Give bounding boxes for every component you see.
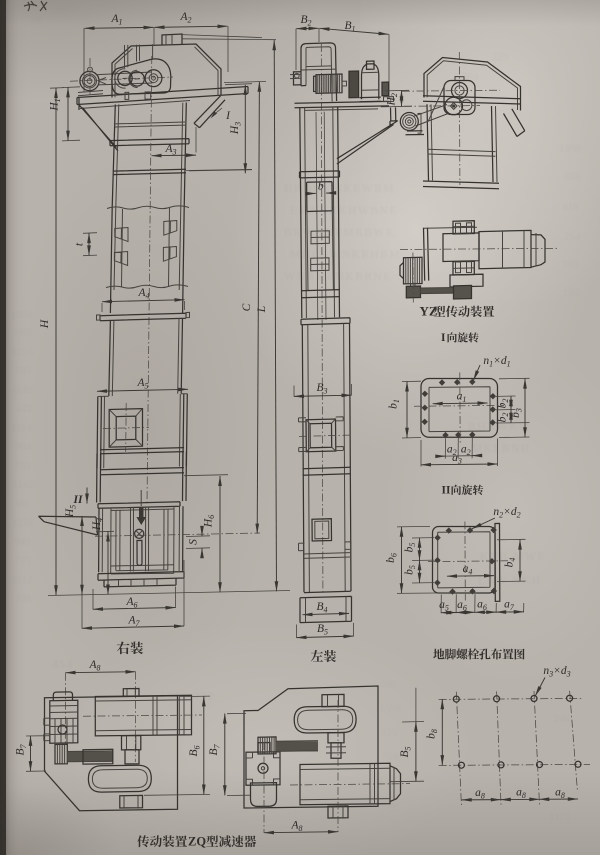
svg-text:EMNBRKHWBNE: EMNBRKHWBNE xyxy=(290,205,398,217)
svg-text:S: S xyxy=(188,539,200,545)
svg-text:246: 246 xyxy=(554,713,571,725)
svg-text:703: 703 xyxy=(562,259,579,271)
svg-text:754: 754 xyxy=(382,751,399,763)
svg-text:1112: 1112 xyxy=(11,574,32,586)
svg-text:454: 454 xyxy=(52,659,74,671)
svg-text:1250: 1250 xyxy=(12,517,35,529)
svg-text:418: 418 xyxy=(562,201,579,213)
svg-text:C: C xyxy=(241,303,253,311)
svg-text:940: 940 xyxy=(14,536,31,548)
svg-text:1550: 1550 xyxy=(379,703,402,715)
svg-text:925: 925 xyxy=(381,727,398,739)
svg-text:785: 785 xyxy=(15,365,32,377)
svg-text:I: I xyxy=(441,332,446,344)
svg-text:n2×d2: n2×d2 xyxy=(493,506,520,520)
svg-text:94: 94 xyxy=(31,13,43,25)
svg-text:254: 254 xyxy=(564,231,581,243)
svg-text:MHEBWNKRHBM: MHEBWNKRHBM xyxy=(290,249,401,261)
svg-text:MKEBNH: MKEBNH xyxy=(472,443,531,455)
svg-text:775: 775 xyxy=(15,555,32,567)
svg-text:n3×d3: n3×d3 xyxy=(543,665,570,679)
svg-text:1350: 1350 xyxy=(11,309,34,321)
svg-text:L: L xyxy=(256,306,268,313)
svg-text:960: 960 xyxy=(16,327,33,339)
svg-text:1556: 1556 xyxy=(11,422,34,434)
svg-text:1185: 1185 xyxy=(378,775,400,787)
svg-text:1255: 1255 xyxy=(11,346,34,358)
svg-text:II: II xyxy=(442,485,451,497)
svg-text:H: H xyxy=(39,319,51,329)
svg-text:WNBMEHKBRNE: WNBMEHKBRNE xyxy=(284,271,392,283)
svg-text:386: 386 xyxy=(14,498,31,510)
svg-text:220: 220 xyxy=(492,51,509,63)
svg-text:190: 190 xyxy=(380,679,397,691)
svg-text:432: 432 xyxy=(16,403,33,415)
svg-text:755: 755 xyxy=(14,460,31,472)
svg-text:1140: 1140 xyxy=(11,384,33,396)
svg-text:155: 155 xyxy=(563,287,580,299)
svg-text:1490: 1490 xyxy=(559,143,582,155)
svg-text:904: 904 xyxy=(15,441,32,453)
svg-text:n1×d1: n1×d1 xyxy=(483,355,510,369)
svg-text:1550 952: 1550 952 xyxy=(160,691,215,703)
svg-text:II: II xyxy=(73,494,83,506)
svg-text:1171: 1171 xyxy=(549,811,571,823)
svg-text:1142: 1142 xyxy=(12,479,34,491)
svg-text:ZQ: ZQ xyxy=(188,835,206,849)
svg-text:955: 955 xyxy=(564,171,581,183)
svg-text:358: 358 xyxy=(15,593,32,605)
